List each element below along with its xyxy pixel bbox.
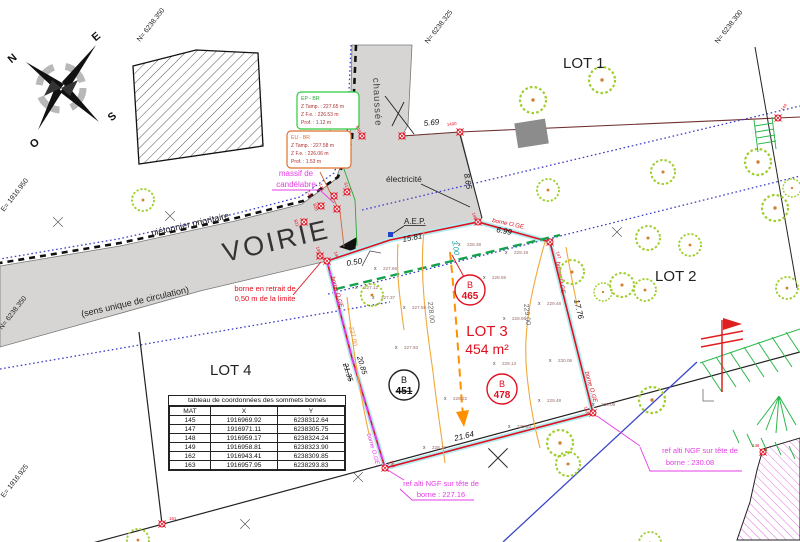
- svg-text:x: x: [483, 275, 486, 281]
- table-row: 1451916969.926238312.64: [170, 416, 345, 425]
- spot-height-label: 230.06: [558, 358, 572, 363]
- power-pole: [701, 318, 743, 392]
- spot-height-label: 228.55: [492, 275, 506, 280]
- spot-height-label: 227.93: [404, 345, 418, 350]
- table-cell: 6238305.75: [278, 425, 345, 434]
- table-cell: 1916959.17: [211, 434, 278, 443]
- ref-alti-1-line1: ref alti NGF sur tête de: [403, 479, 479, 488]
- electricity-label: électricité: [386, 174, 422, 184]
- ep-box-line: Prof. : 1.12 m: [301, 120, 331, 126]
- table-cell: 145: [170, 416, 211, 425]
- compass-e: E: [90, 30, 103, 44]
- ep-manhole-box: EP - BR Z Tamp. : 227.65 m Z F.e. : 226.…: [297, 92, 359, 129]
- candelabra-text-1: massif de: [279, 169, 314, 178]
- hatched-building: [133, 50, 263, 164]
- b465-letter: B: [467, 280, 473, 290]
- flow-arrow: [450, 252, 463, 414]
- magenta-hatched-building: [737, 438, 800, 540]
- spot-height-label: 229.48: [547, 301, 561, 306]
- table-cell: 148: [170, 434, 211, 443]
- coordinates-table: tableau de coordonnées des sommets borné…: [168, 395, 346, 471]
- lot2-label: LOT 2: [655, 268, 696, 285]
- b478-letter: B: [499, 379, 505, 389]
- lot3-label: LOT 3: [466, 323, 507, 340]
- compass-s: S: [106, 110, 119, 124]
- point-1400: 1400: [447, 121, 458, 127]
- table-cell: 6238324.24: [278, 434, 345, 443]
- dim-17-76: 17.76: [572, 298, 585, 320]
- aep-label: A.E.P.: [404, 217, 426, 226]
- table-cell: 163: [170, 461, 211, 470]
- borne-id: 146: [752, 443, 760, 448]
- b478-number: 478: [494, 390, 511, 401]
- spot-height-label: 229.19: [514, 250, 528, 255]
- table-row: 1491916958.816238323.90: [170, 443, 345, 452]
- grid-label: N= 6238.300: [714, 9, 744, 45]
- grid-label: N= 6238.350: [136, 7, 166, 43]
- contour-label-229: 229.00: [522, 303, 531, 325]
- talus-fan: [757, 396, 796, 433]
- dim-5-69: 5.69: [423, 117, 440, 128]
- spot-height-label: 229.20: [517, 424, 531, 429]
- svg-text:x: x: [403, 305, 406, 311]
- borne-repere-465: B 465: [455, 275, 485, 305]
- compass-n: N: [6, 52, 20, 66]
- contour-label-228: 228.00: [426, 301, 435, 323]
- eu-box-line: Z Tamp. : 227.58 m: [291, 143, 334, 149]
- eu-box-line: Z F.e. : 226.06 m: [291, 151, 329, 157]
- table-row: 1471916971.116238305.75: [170, 425, 345, 434]
- spot-height-label: 228.22: [453, 396, 467, 401]
- ref-alti-1-line2: borne : 227.16: [417, 490, 465, 499]
- offset-bracket: [362, 251, 381, 266]
- retrait-note-1: borne en retrait de: [234, 284, 295, 293]
- survey-plan: chaussée piétonnier prioritaire VOIRIE (…: [0, 0, 800, 542]
- table-cell: 149: [170, 443, 211, 452]
- svg-text:x: x: [538, 301, 541, 307]
- table-header-mat: MAT: [170, 407, 211, 416]
- svg-text:x: x: [374, 266, 377, 272]
- svg-text:x: x: [355, 285, 358, 291]
- table-row: 1631916957.956238293.83: [170, 461, 345, 470]
- lot4-east-boundary: [139, 332, 162, 524]
- svg-text:x: x: [444, 396, 447, 402]
- spot-height-label: 229.13: [502, 361, 516, 366]
- table-cell: 1916958.81: [211, 443, 278, 452]
- plan-canvas: chaussée piétonnier prioritaire VOIRIE (…: [0, 0, 800, 542]
- compass-w: O: [28, 136, 43, 151]
- eu-box-line: Prof. : 1.53 m: [291, 159, 321, 165]
- retrait-note-2: 0,50 m de la limite: [235, 294, 296, 303]
- table-cell: 6238309.85: [278, 452, 345, 461]
- ref-alti-note-1: ref alti NGF sur tête de borne : 227.16: [386, 469, 479, 500]
- table-cell: 6238312.64: [278, 416, 345, 425]
- svg-text:x: x: [508, 424, 511, 430]
- table-row: 1621916943.416238309.85: [170, 452, 345, 461]
- svg-text:x: x: [549, 358, 552, 364]
- compass-rose: N E S O: [6, 30, 119, 151]
- table-cell: 1916971.11: [211, 425, 278, 434]
- grid-label: N= 6238.325: [424, 9, 454, 45]
- eu-manhole-box: EU - BR Z Tamp. : 227.58 m Z F.e. : 226.…: [287, 131, 351, 168]
- borne-id: 161: [169, 516, 177, 521]
- svg-text:x: x: [395, 345, 398, 351]
- borne-repere-451: B 451: [389, 370, 419, 400]
- spot-height-label: 227.59: [412, 305, 426, 310]
- table-header-x: X: [211, 407, 278, 416]
- spot-height-label: 229.48: [547, 398, 561, 403]
- ep-box-line: Z Tamp. : 227.65 m: [301, 104, 344, 110]
- candelabra-text-2: candélabre: [276, 180, 316, 189]
- spot-height-label: 228.38: [467, 242, 481, 247]
- ref-alti-note-2: ref alti NGF sur tête de borne : 230.08: [597, 416, 742, 471]
- table-row: 1481916959.176238324.24: [170, 434, 345, 443]
- table-cell: 147: [170, 425, 211, 434]
- b465-number: 465: [462, 291, 479, 302]
- table-cell: 1916957.95: [211, 461, 278, 470]
- table-body: 1451916969.926238312.641471916971.116238…: [170, 416, 345, 470]
- gray-shed: [514, 119, 549, 149]
- table-header-row: MAT X Y: [170, 407, 345, 416]
- spot-height-label: 230.09: [601, 402, 615, 407]
- table-cell: 162: [170, 452, 211, 461]
- grid-label: E= 1916.925: [0, 463, 30, 499]
- spot-height-label: 228.95: [512, 316, 526, 321]
- borne-oge-east: borne O.GE.: [554, 261, 566, 295]
- lot1-east-boundary: [755, 47, 797, 288]
- svg-text:x: x: [538, 398, 541, 404]
- talus-hatching: [702, 332, 800, 392]
- lot4-label: LOT 4: [210, 362, 251, 379]
- borne-id: 144: [780, 102, 789, 111]
- table-cell: 6238323.90: [278, 443, 345, 452]
- table-cell: 1916969.92: [211, 416, 278, 425]
- flow-arrow-head: [456, 410, 469, 427]
- lot3-area-label: 454 m²: [465, 341, 509, 357]
- b451-number: 451: [396, 386, 413, 397]
- ep-box-title: EP - BR: [301, 96, 320, 102]
- grid-label: E= 1916.950: [0, 177, 30, 213]
- coordinates-table-title: tableau de coordonnées des sommets borné…: [169, 396, 345, 406]
- spot-height-label: 228.12: [432, 445, 446, 450]
- table-cell: 1916943.41: [211, 452, 278, 461]
- spot-height-label: 227.66: [383, 266, 397, 271]
- ep-box-line: Z F.e. : 226.53 m: [301, 112, 339, 118]
- lot1-label: LOT 1: [563, 55, 604, 72]
- ref-alti-2-line2: borne : 230.08: [666, 458, 714, 467]
- table-cell: 6238293.83: [278, 461, 345, 470]
- green-structures: [700, 117, 800, 459]
- svg-text:x: x: [503, 316, 506, 322]
- ref-alti-2-line1: ref alti NGF sur tête de: [662, 446, 738, 455]
- b451-letter: B: [401, 375, 407, 385]
- borne-repere-478: B 478: [487, 374, 517, 404]
- eu-box-title: EU - BR: [291, 135, 310, 141]
- dim-0-50: 0.50: [346, 256, 363, 268]
- svg-text:x: x: [493, 361, 496, 367]
- aep-valve: [388, 232, 393, 237]
- table-header-y: Y: [278, 407, 345, 416]
- wall-corner-mark: [703, 389, 714, 401]
- svg-text:x: x: [505, 250, 508, 256]
- svg-text:x: x: [423, 445, 426, 451]
